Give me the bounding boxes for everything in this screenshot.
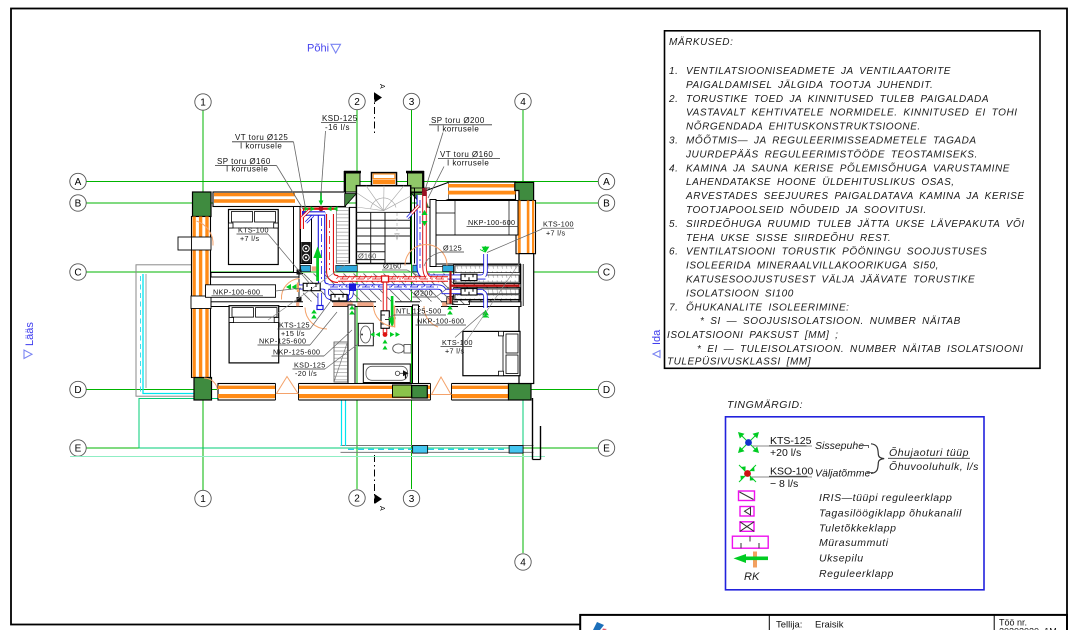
svg-text:I korrusele: I korrusele (447, 159, 489, 168)
svg-text:VASTAVALT KEHTIVATELE NORMIDEL: VASTAVALT KEHTIVATELE NORMIDELE. KINNITU… (686, 108, 1018, 119)
svg-text:Tagasilöögiklapp õhukanalil: Tagasilöögiklapp õhukanalil (819, 508, 962, 520)
svg-text:KATUSESOOJUSTUSEST VÄLJA JÄÄVA: KATUSESOOJUSTUSEST VÄLJA JÄÄVATE TORUSTI… (686, 274, 975, 286)
svg-text:Ø125: Ø125 (443, 244, 462, 253)
svg-text:ISOLATSIOON SI100: ISOLATSIOON SI100 (686, 288, 794, 299)
svg-text:NKP-125-600: NKP-125-600 (259, 337, 306, 346)
svg-text:VENTILATSIOONISEADMETE JA VENT: VENTILATSIOONISEADMETE JA VENTILAATORITE (686, 66, 951, 77)
svg-text:2.: 2. (668, 94, 678, 105)
svg-text:Lääs: Lääs (24, 322, 36, 346)
svg-text:KSO-100: KSO-100 (770, 466, 813, 478)
svg-text:+20 l/s: +20 l/s (770, 447, 801, 459)
svg-text:Ø160: Ø160 (383, 262, 401, 271)
svg-text:ARVESTADES SEEJUURES PAIGALDAT: ARVESTADES SEEJUURES PAIGALDATAVA KAMINA… (685, 191, 1025, 202)
svg-text:Tuletõkkeklapp: Tuletõkkeklapp (819, 523, 897, 535)
svg-text:* EI — TULEISOLATSIOON. NUMBER: * EI — TULEISOLATSIOON. NUMBER NÄITAB IS… (697, 343, 1023, 355)
svg-text:20202020−1M: 20202020−1M (999, 627, 1057, 630)
svg-text:Sissepuhe: Sissepuhe (815, 440, 864, 452)
svg-text:A: A (378, 84, 385, 89)
svg-text:NKP-100-600: NKP-100-600 (417, 317, 464, 326)
svg-text:KAMINA JA SAUNA KERISE PÕLEMIS: KAMINA JA SAUNA KERISE PÕLEMISÕHUGA VARU… (686, 161, 1010, 174)
svg-text:Tellija:: Tellija: (776, 620, 802, 630)
svg-text:B: B (603, 199, 610, 210)
svg-text:IRIS—tüüpi reguleerklapp: IRIS—tüüpi reguleerklapp (819, 492, 952, 504)
svg-text:I korrusele: I korrusele (437, 125, 479, 134)
svg-text:5.: 5. (669, 219, 678, 230)
svg-text:SIIRDEÕHUGA RUUMID TULEB JÄTTA: SIIRDEÕHUGA RUUMID TULEB JÄTTA UKSE LÄVE… (686, 217, 1025, 230)
svg-text:C: C (603, 268, 610, 279)
svg-text:TULEPÜSIVUSKLASSI [MM]: TULEPÜSIVUSKLASSI [MM] (667, 356, 811, 368)
svg-text:4: 4 (520, 97, 526, 108)
svg-text:Mürasummuti: Mürasummuti (819, 537, 889, 549)
svg-text:7.: 7. (669, 302, 678, 313)
svg-text:NKP-100-600: NKP-100-600 (468, 218, 515, 227)
svg-text:+7 l/s: +7 l/s (445, 347, 465, 356)
svg-text:4: 4 (520, 558, 526, 569)
svg-text:+7 l/s: +7 l/s (240, 234, 260, 243)
svg-text:B: B (75, 199, 82, 210)
svg-text:2: 2 (354, 97, 360, 108)
svg-text:1: 1 (200, 98, 206, 109)
svg-text:-20 l/s: -20 l/s (295, 369, 317, 378)
svg-text:1: 1 (200, 494, 206, 505)
svg-text:Ida: Ida (651, 329, 663, 345)
svg-text:Põhi: Põhi (307, 43, 329, 55)
svg-text:LAHENDATAKSE HOONE ÜLDEHITUSLI: LAHENDATAKSE HOONE ÜLDEHITUSLIKUS OSAS, (686, 176, 955, 188)
svg-text:3.: 3. (669, 136, 678, 147)
svg-text:Väljatõmme: Väljatõmme (815, 468, 871, 480)
svg-text:NÕRGENDADA EHITUSKONSTRUKTSIOO: NÕRGENDADA EHITUSKONSTRUKTSIOONE. (686, 120, 921, 133)
svg-text:E: E (75, 444, 82, 455)
svg-text:4.: 4. (669, 163, 678, 174)
svg-text:KTS-125: KTS-125 (770, 435, 812, 447)
svg-text:ISOLEERIDA MINERAALVILLAKOORIK: ISOLEERIDA MINERAALVILLAKOORIKUGA SI50, (686, 261, 939, 272)
svg-text:TORUSTIKE TOED JA KINNITUSED T: TORUSTIKE TOED JA KINNITUSED TULEB PAIGA… (686, 94, 989, 105)
svg-text:RK: RK (744, 571, 760, 583)
svg-text:ISOLATSIOONI PAKSUST [MM] ;: ISOLATSIOONI PAKSUST [MM] ; (667, 330, 838, 341)
svg-text:VENTILATSIOONI TORUSTIK PÖÖNIN: VENTILATSIOONI TORUSTIK PÖÖNINGU SOOJUST… (686, 246, 987, 258)
svg-text:C: C (74, 268, 81, 279)
svg-text:E: E (603, 444, 610, 455)
svg-text:-16 l/s: -16 l/s (325, 123, 350, 132)
svg-text:2: 2 (354, 494, 360, 505)
svg-text:NKP-125-600: NKP-125-600 (273, 348, 320, 357)
svg-text:NKP-100-600: NKP-100-600 (213, 287, 260, 296)
svg-text:Õhuvooluhulk, l/s: Õhuvooluhulk, l/s (889, 460, 979, 473)
svg-text:TEHA UKSE SISSE SIIRDEÕHU REST: TEHA UKSE SISSE SIIRDEÕHU REST. (686, 231, 891, 244)
svg-text:I korrusele: I korrusele (240, 142, 282, 151)
svg-text:A: A (603, 177, 610, 188)
svg-text:Uksepilu: Uksepilu (819, 553, 864, 565)
svg-text:D: D (603, 385, 610, 396)
svg-text:3: 3 (409, 97, 415, 108)
svg-text:* SI — SOOJUSISOLATSIOON. NUMB: * SI — SOOJUSISOLATSIOON. NUMBER NÄITAB (700, 315, 961, 327)
svg-text:MÄRKUSED:: MÄRKUSED: (669, 36, 733, 48)
svg-text:ÕHUKANALITE ISOLEERIMINE:: ÕHUKANALITE ISOLEERIMINE: (686, 300, 850, 313)
svg-text:TOOTJAPOOLSEID NÕUDEID JA SOOV: TOOTJAPOOLSEID NÕUDEID JA SOOVITUSI. (686, 203, 927, 216)
svg-text:A: A (75, 177, 82, 188)
svg-text:D: D (74, 385, 81, 396)
svg-text:+7 l/s: +7 l/s (546, 229, 566, 238)
svg-text:Õhujaoturi tüüp: Õhujaoturi tüüp (889, 446, 969, 459)
svg-text:Reguleerklapp: Reguleerklapp (819, 568, 894, 580)
svg-text:NTL 125-500: NTL 125-500 (396, 307, 442, 316)
svg-text:3: 3 (409, 494, 415, 505)
svg-text:A: A (378, 506, 385, 511)
svg-text:1.: 1. (669, 66, 678, 77)
svg-text:− 8 l/s: − 8 l/s (770, 478, 798, 490)
svg-text:KTS-100: KTS-100 (543, 220, 574, 229)
svg-text:PAIGALDAMISEL JÄLGIDA TOOTJA J: PAIGALDAMISEL JÄLGIDA TOOTJA JUHENDIT. (686, 79, 933, 91)
svg-text:JUURDEPÄÄS REGULEERIMISTÖÖDE T: JUURDEPÄÄS REGULEERIMISTÖÖDE TEOSTAMISEK… (685, 148, 978, 160)
svg-text:MÕÕTMIS— JA REGULEERIMISSEADME: MÕÕTMIS— JA REGULEERIMISSEADMETELE TAGAD… (686, 134, 977, 147)
svg-text:Ø200: Ø200 (414, 289, 433, 298)
svg-text:Eraisik: Eraisik (815, 620, 844, 630)
svg-text:KSD-125: KSD-125 (322, 114, 358, 123)
svg-text:TINGMÄRGID:: TINGMÄRGID: (727, 399, 803, 411)
svg-text:6.: 6. (669, 247, 678, 258)
svg-text:Ø160: Ø160 (358, 252, 376, 261)
